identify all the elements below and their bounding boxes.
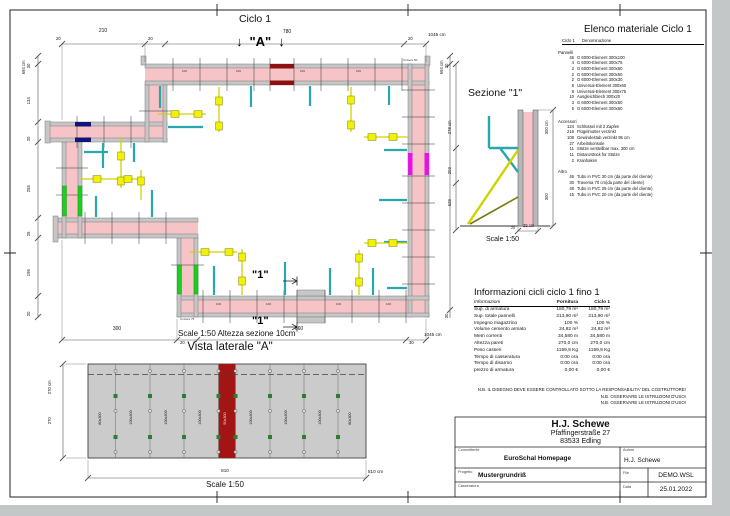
- dim-label: 255: [27, 185, 31, 192]
- committente-value: EuroSchal Homepage: [455, 455, 620, 462]
- col-ciclo: Ciclo 1: [562, 38, 577, 43]
- material-name: Kranhaken: [577, 158, 712, 164]
- dim-label: 810 cm: [368, 470, 383, 475]
- info-fornitura: 34,580 m: [542, 334, 578, 341]
- info-fornitura: 180,79 m²: [542, 307, 578, 314]
- info-ciclo1: 0,00 €: [578, 368, 610, 375]
- drawing-sheet: { "page": { "plan": { "title": "Ciclo 1"…: [0, 0, 730, 516]
- info-row: prezzo di armatura0,00 €0,00 €: [474, 368, 610, 375]
- material-qty: 5: [558, 106, 574, 112]
- info-label: prezzo di armatura: [474, 368, 542, 375]
- dim-label: 30: [409, 341, 414, 345]
- dim-label: 660: [282, 327, 316, 332]
- section-prop-yellow: [468, 150, 518, 224]
- dim-label: 1045 cm: [428, 33, 446, 38]
- info-label: Metri correnti: [474, 334, 542, 341]
- company-street: Pfaffingerstraße 27: [455, 430, 706, 437]
- props-yellow: [80, 87, 408, 295]
- data-label: Data: [623, 485, 631, 489]
- material-row: 5G 6000-Element 300x60: [558, 106, 712, 112]
- dim-label: 20: [56, 37, 61, 41]
- info-ciclo1: 1159,9 Kg: [578, 348, 610, 355]
- info-row: Peso casseri1159,9 Kg1159,9 Kg: [474, 348, 610, 355]
- panel-label: 100: [236, 70, 241, 73]
- panel-label: 100: [356, 70, 361, 73]
- col-denominazione: Denominazione: [582, 38, 611, 43]
- panel-label: 100: [266, 303, 271, 306]
- progetto-value: Mustergrundriß: [478, 472, 526, 479]
- data-value: 25.01.2022: [648, 486, 704, 493]
- autore-value: H.J. Schewe: [624, 457, 661, 464]
- col-fornitura: Fornitura: [542, 300, 578, 305]
- panel-label: 100: [182, 70, 187, 73]
- dim-label: 270 cm: [48, 380, 52, 394]
- dim-label: 300: [100, 327, 134, 332]
- side-view-title: Vista laterale "A": [140, 342, 320, 354]
- info-label: Sup. totale pannelli: [474, 314, 542, 321]
- disclaimer-note: N.B. OSSERVARE LE ISTRUZIONI D'USO!: [601, 400, 686, 405]
- col-informazioni: Informazioni: [474, 300, 542, 305]
- material-name: G 6000-Element 300x60: [577, 106, 712, 112]
- dim-label: 30: [445, 64, 449, 69]
- dim-label: 278 cm: [448, 120, 452, 134]
- dim-label: 810: [210, 469, 240, 474]
- panel-size-label: 100x300: [319, 410, 323, 425]
- dim-label: 300 cm: [545, 120, 549, 134]
- dim-label: 134: [27, 97, 31, 104]
- info-row: Sup. di armatura180,79 m²180,79 m²: [474, 307, 610, 314]
- company-city: 83533 Edling: [455, 438, 706, 445]
- dim-label: 629: [448, 199, 452, 206]
- arrow-down-icon: ↓: [278, 34, 285, 49]
- section-platform-cyan: [489, 116, 518, 172]
- dim-label: 25 cm: [523, 224, 534, 228]
- dim-label: 30: [27, 64, 31, 69]
- file-value: DEMO.WSL: [648, 472, 704, 479]
- side-view-scale: Scale 1:50: [170, 481, 280, 489]
- section-a-label: "A": [250, 34, 272, 49]
- file-label: File: [623, 471, 629, 475]
- dim-label: 20: [148, 37, 153, 41]
- autore-label: Autore: [623, 448, 634, 452]
- section-a-marker: ↓ "A" ↓: [236, 34, 285, 49]
- section-title: Sezione "1": [468, 88, 522, 99]
- dim-label: 300: [545, 193, 549, 200]
- info-label: Peso casseri: [474, 348, 542, 355]
- dim-label: 20: [511, 227, 515, 231]
- info-ciclo1: 213,90 m²: [578, 314, 610, 321]
- info-ciclo1: 270,0 cm: [578, 341, 610, 348]
- disclaimer-note: N.B. IL DISEGNO DEVE ESSERE CONTROLLATO …: [478, 387, 686, 392]
- panel-size-label: 100x300: [250, 410, 254, 425]
- committente-label: Committente: [458, 448, 480, 452]
- info-ciclo1: 34,580 m: [578, 334, 610, 341]
- info-row: Sup. totale pannelli213,90 m²213,90 m²: [474, 314, 610, 321]
- material-row: 2Kranhaken: [558, 158, 712, 164]
- casseratura-label: Casseratura: [458, 484, 479, 488]
- material-list-title: Elenco materiale Ciclo 1: [584, 24, 712, 35]
- cycle-info-table: Informazioni cicli ciclo 1 fino 1 Inform…: [474, 287, 610, 375]
- info-fornitura: 0,00 €: [542, 368, 578, 375]
- section-1-label: "1": [252, 269, 269, 281]
- material-qty: 15: [558, 192, 574, 198]
- info-fornitura: 270,0 cm: [542, 341, 578, 348]
- dim-label: 1045 cm: [424, 333, 442, 338]
- cycle-info-header: Informazioni Fornitura Ciclo 1: [474, 300, 610, 307]
- cycle-info-title: Informazioni cicli ciclo 1 fino 1: [474, 287, 610, 298]
- panel-label: 100: [336, 303, 341, 306]
- company-name: H.J. Schewe: [455, 419, 706, 430]
- disclaimer-note: N.B. OSSERVARE LE ISTRUZIONI D'USO!: [601, 394, 686, 399]
- material-list: Elenco materiale Ciclo 1 Ciclo 1 Denomin…: [558, 24, 712, 197]
- plan-title: Ciclo 1: [205, 14, 305, 25]
- info-fornitura: 213,90 m²: [542, 314, 578, 321]
- dim-label: 210: [88, 29, 118, 34]
- dim-label: 20: [27, 137, 31, 142]
- panel-label: Univers 75: [180, 318, 194, 321]
- info-label: Altezza pareti: [474, 341, 542, 348]
- col-ciclo1: Ciclo 1: [578, 300, 610, 305]
- section-1-label: "1": [252, 315, 269, 327]
- panel-size-label: 100x300: [165, 410, 169, 425]
- panel-size-label: 100x300: [199, 410, 203, 425]
- dim-label: 203: [448, 167, 452, 174]
- panel-label: 100: [216, 303, 221, 306]
- paper-page: Ciclo 1 ↓ "A" ↓ "1" "1" Scale 1:50 Altez…: [0, 0, 712, 505]
- dim-label: 25: [27, 232, 31, 237]
- panel-size-label: 80x300: [349, 412, 353, 424]
- plan-scale-note: Scale 1:50 Altezza sezione 10cm: [178, 330, 295, 338]
- dim-label: 780: [270, 30, 304, 35]
- panel-label: 100: [300, 70, 305, 73]
- panel-size-label: 100x300: [130, 410, 134, 425]
- info-row: Altezza pareti270,0 cm270,0 cm: [474, 341, 610, 348]
- material-qty: 2: [558, 158, 574, 164]
- progetto-label: Progetto: [458, 470, 472, 474]
- dim-label: 20: [27, 312, 31, 317]
- material-name: Tubo in PVC 20 cm (da parte del cliente): [577, 192, 712, 198]
- panel-size-label: 100x300: [285, 410, 289, 425]
- dim-label: 20: [408, 37, 413, 41]
- panel-size-label: 80x300: [99, 412, 103, 424]
- section-drawing: [460, 110, 550, 226]
- arrow-down-icon: ↓: [236, 34, 243, 49]
- panel-label: 100: [386, 303, 391, 306]
- section-scale: Scale 1:50: [486, 236, 519, 243]
- info-label: Sup. di armatura: [474, 307, 542, 314]
- dim-label: 30: [445, 314, 449, 319]
- material-list-header: Ciclo 1 Denominazione: [562, 38, 704, 45]
- dim-label: 195: [27, 269, 31, 276]
- info-fornitura: 1159,9 Kg: [542, 348, 578, 355]
- info-row: Metri correnti34,580 m34,580 m: [474, 334, 610, 341]
- dim-label: 270: [48, 417, 52, 424]
- panel-label: Univers 50: [403, 59, 417, 62]
- material-row: 15Tubo in PVC 20 cm (da parte del client…: [558, 192, 712, 198]
- panel-size-label: 50x300: [224, 412, 228, 424]
- info-ciclo1: 180,79 m²: [578, 307, 610, 314]
- side-view-red-panel: [219, 364, 236, 458]
